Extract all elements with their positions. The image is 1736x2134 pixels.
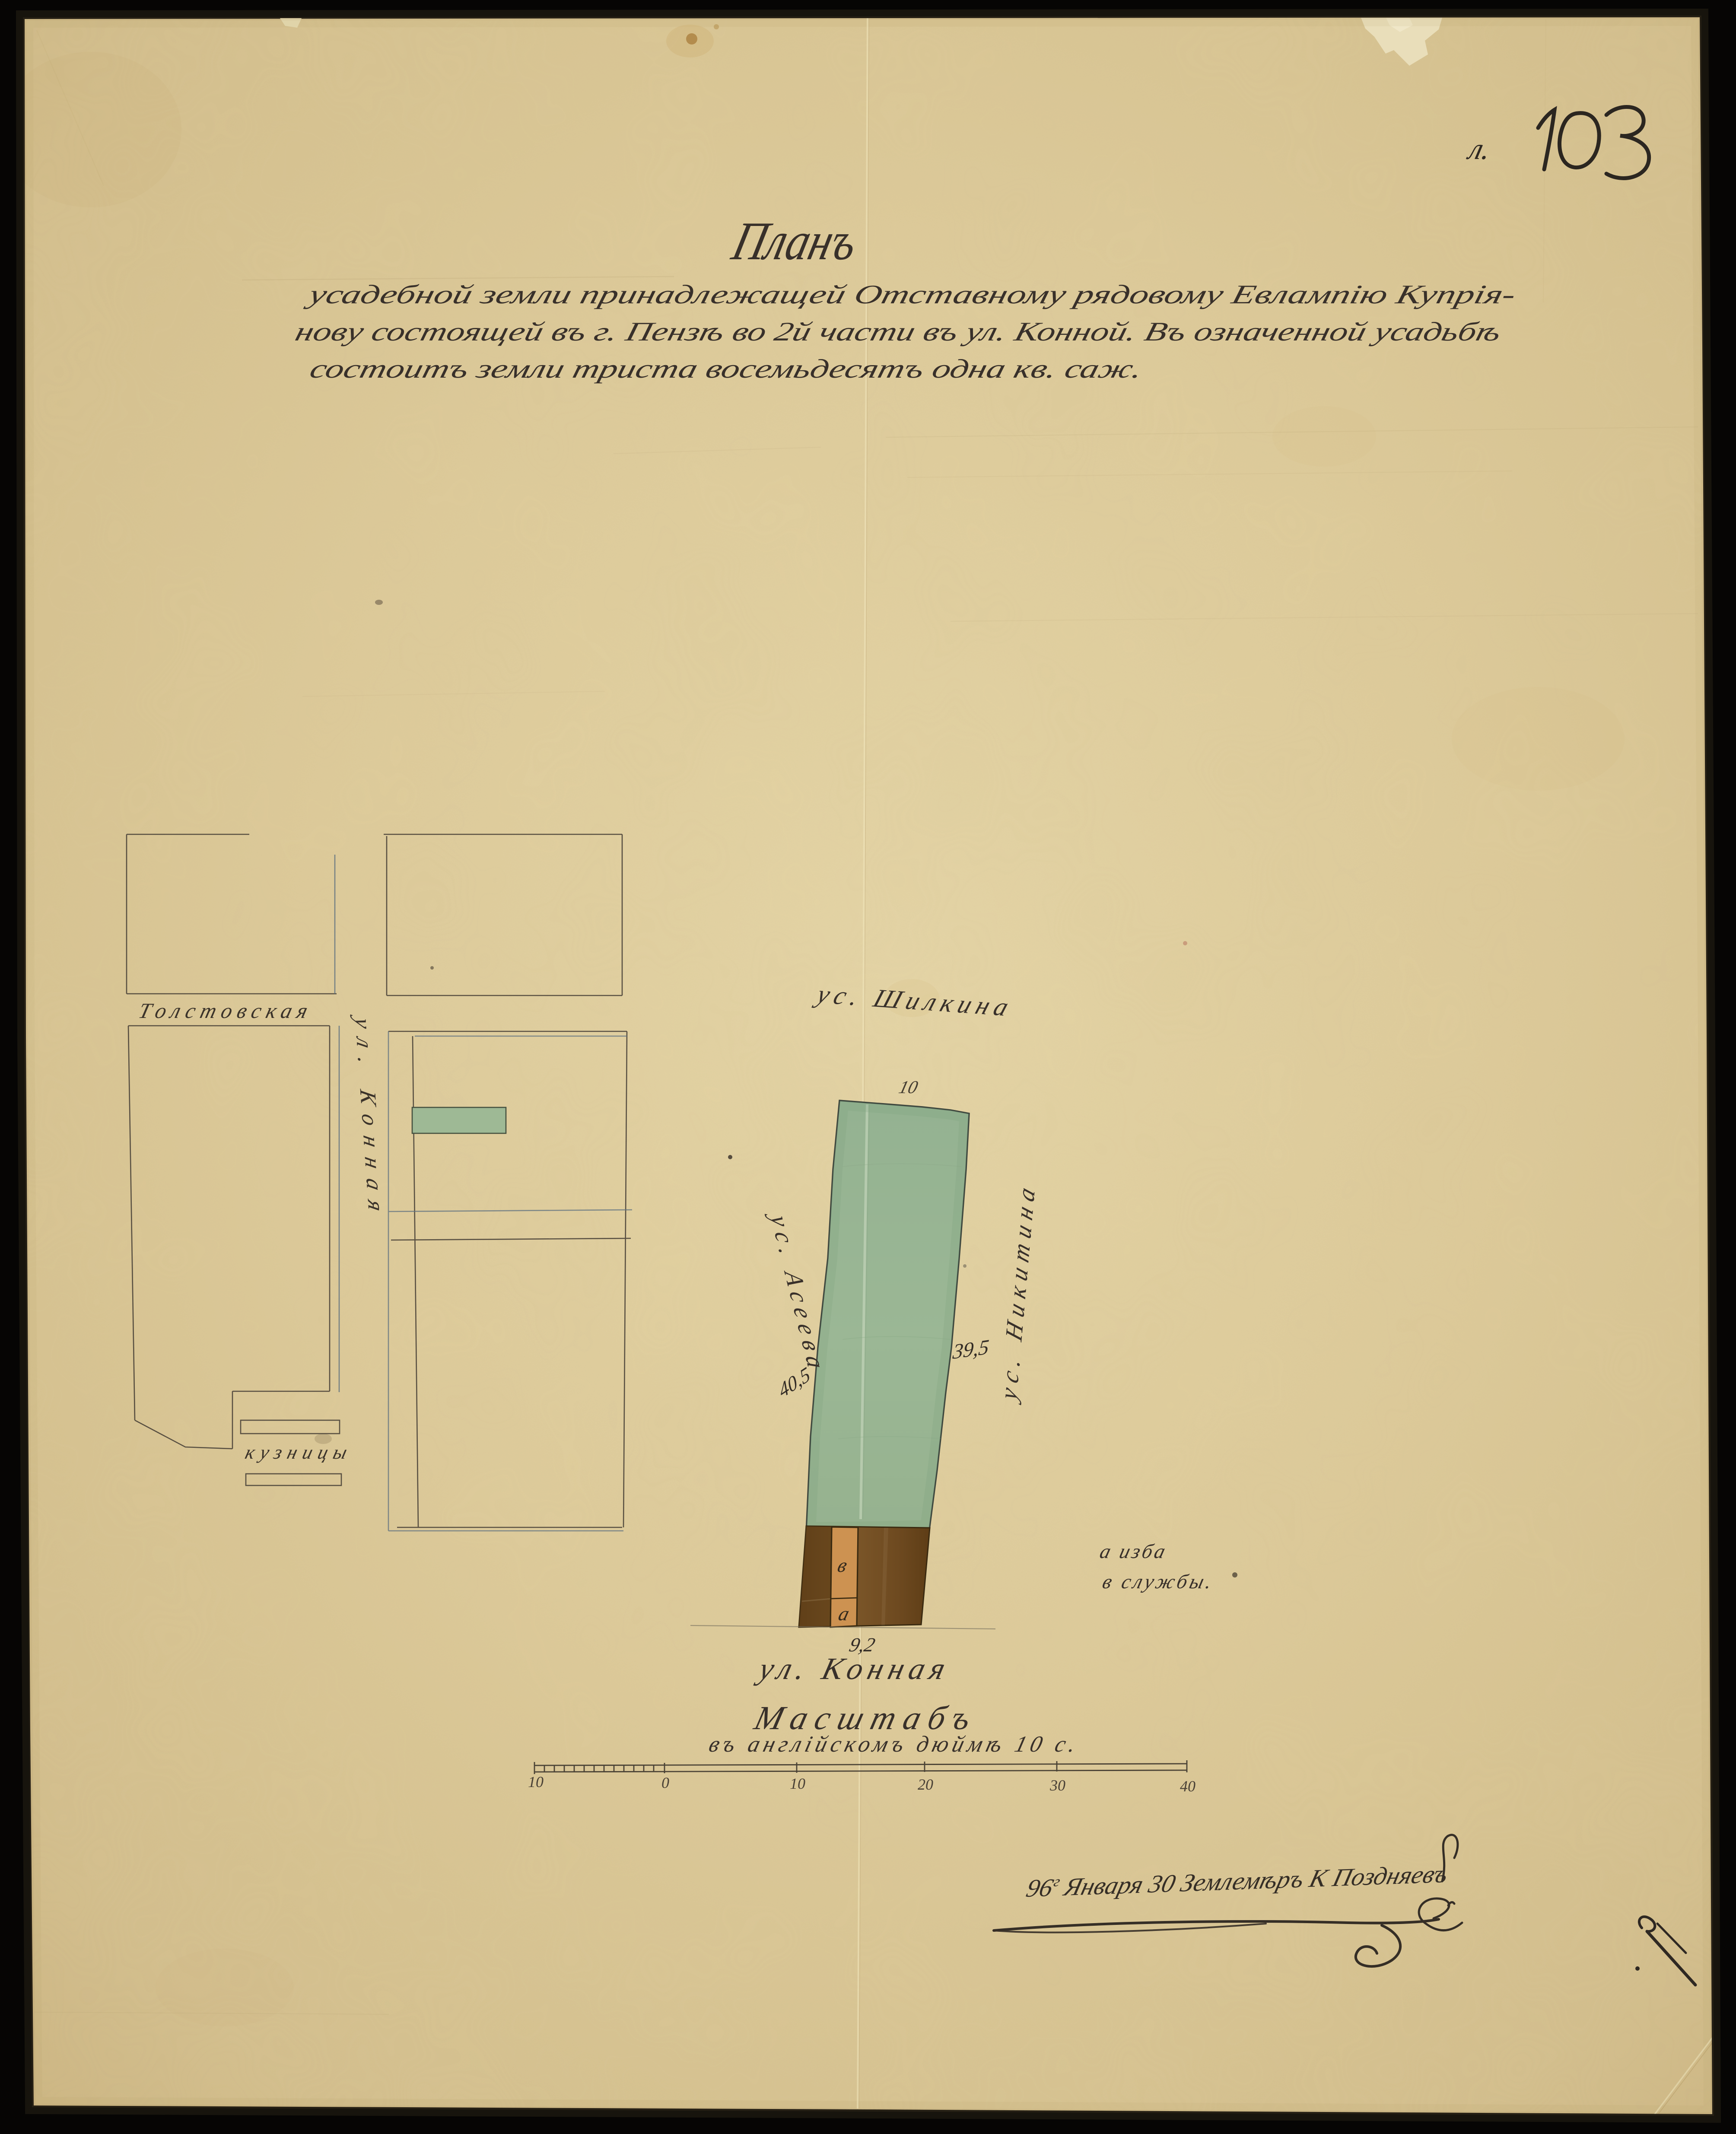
svg-text:20: 20	[918, 1776, 933, 1793]
svg-text:состоитъ земли триста восемьде: состоитъ земли триста восемьдесятъ одна …	[307, 354, 1146, 384]
svg-text:10: 10	[790, 1775, 805, 1792]
svg-text:10: 10	[528, 1773, 544, 1791]
svg-text:въ англійскомъ дюймѣ 10 с.: въ англійскомъ дюймѣ 10 с.	[706, 1731, 1082, 1757]
svg-text:в службы.: в службы.	[1100, 1571, 1217, 1593]
svg-text:усадебной земли принадлежащей: усадебной земли принадлежащей Отставному…	[302, 280, 1519, 309]
svg-text:0: 0	[661, 1774, 669, 1791]
svg-text:кузницы: кузницы	[243, 1441, 355, 1463]
svg-text:30: 30	[1049, 1777, 1065, 1794]
svg-text:а изба: а изба	[1097, 1540, 1170, 1563]
svg-text:Толстовская: Толстовская	[136, 999, 315, 1023]
svg-text:40: 40	[1180, 1778, 1195, 1795]
svg-text:Планъ: Планъ	[726, 211, 864, 271]
svg-text:ул. Конная: ул. Конная	[753, 1651, 954, 1686]
svg-text:нову состоящей въ г. Пензѣ во: нову состоящей въ г. Пензѣ во 2й части в…	[293, 317, 1504, 347]
